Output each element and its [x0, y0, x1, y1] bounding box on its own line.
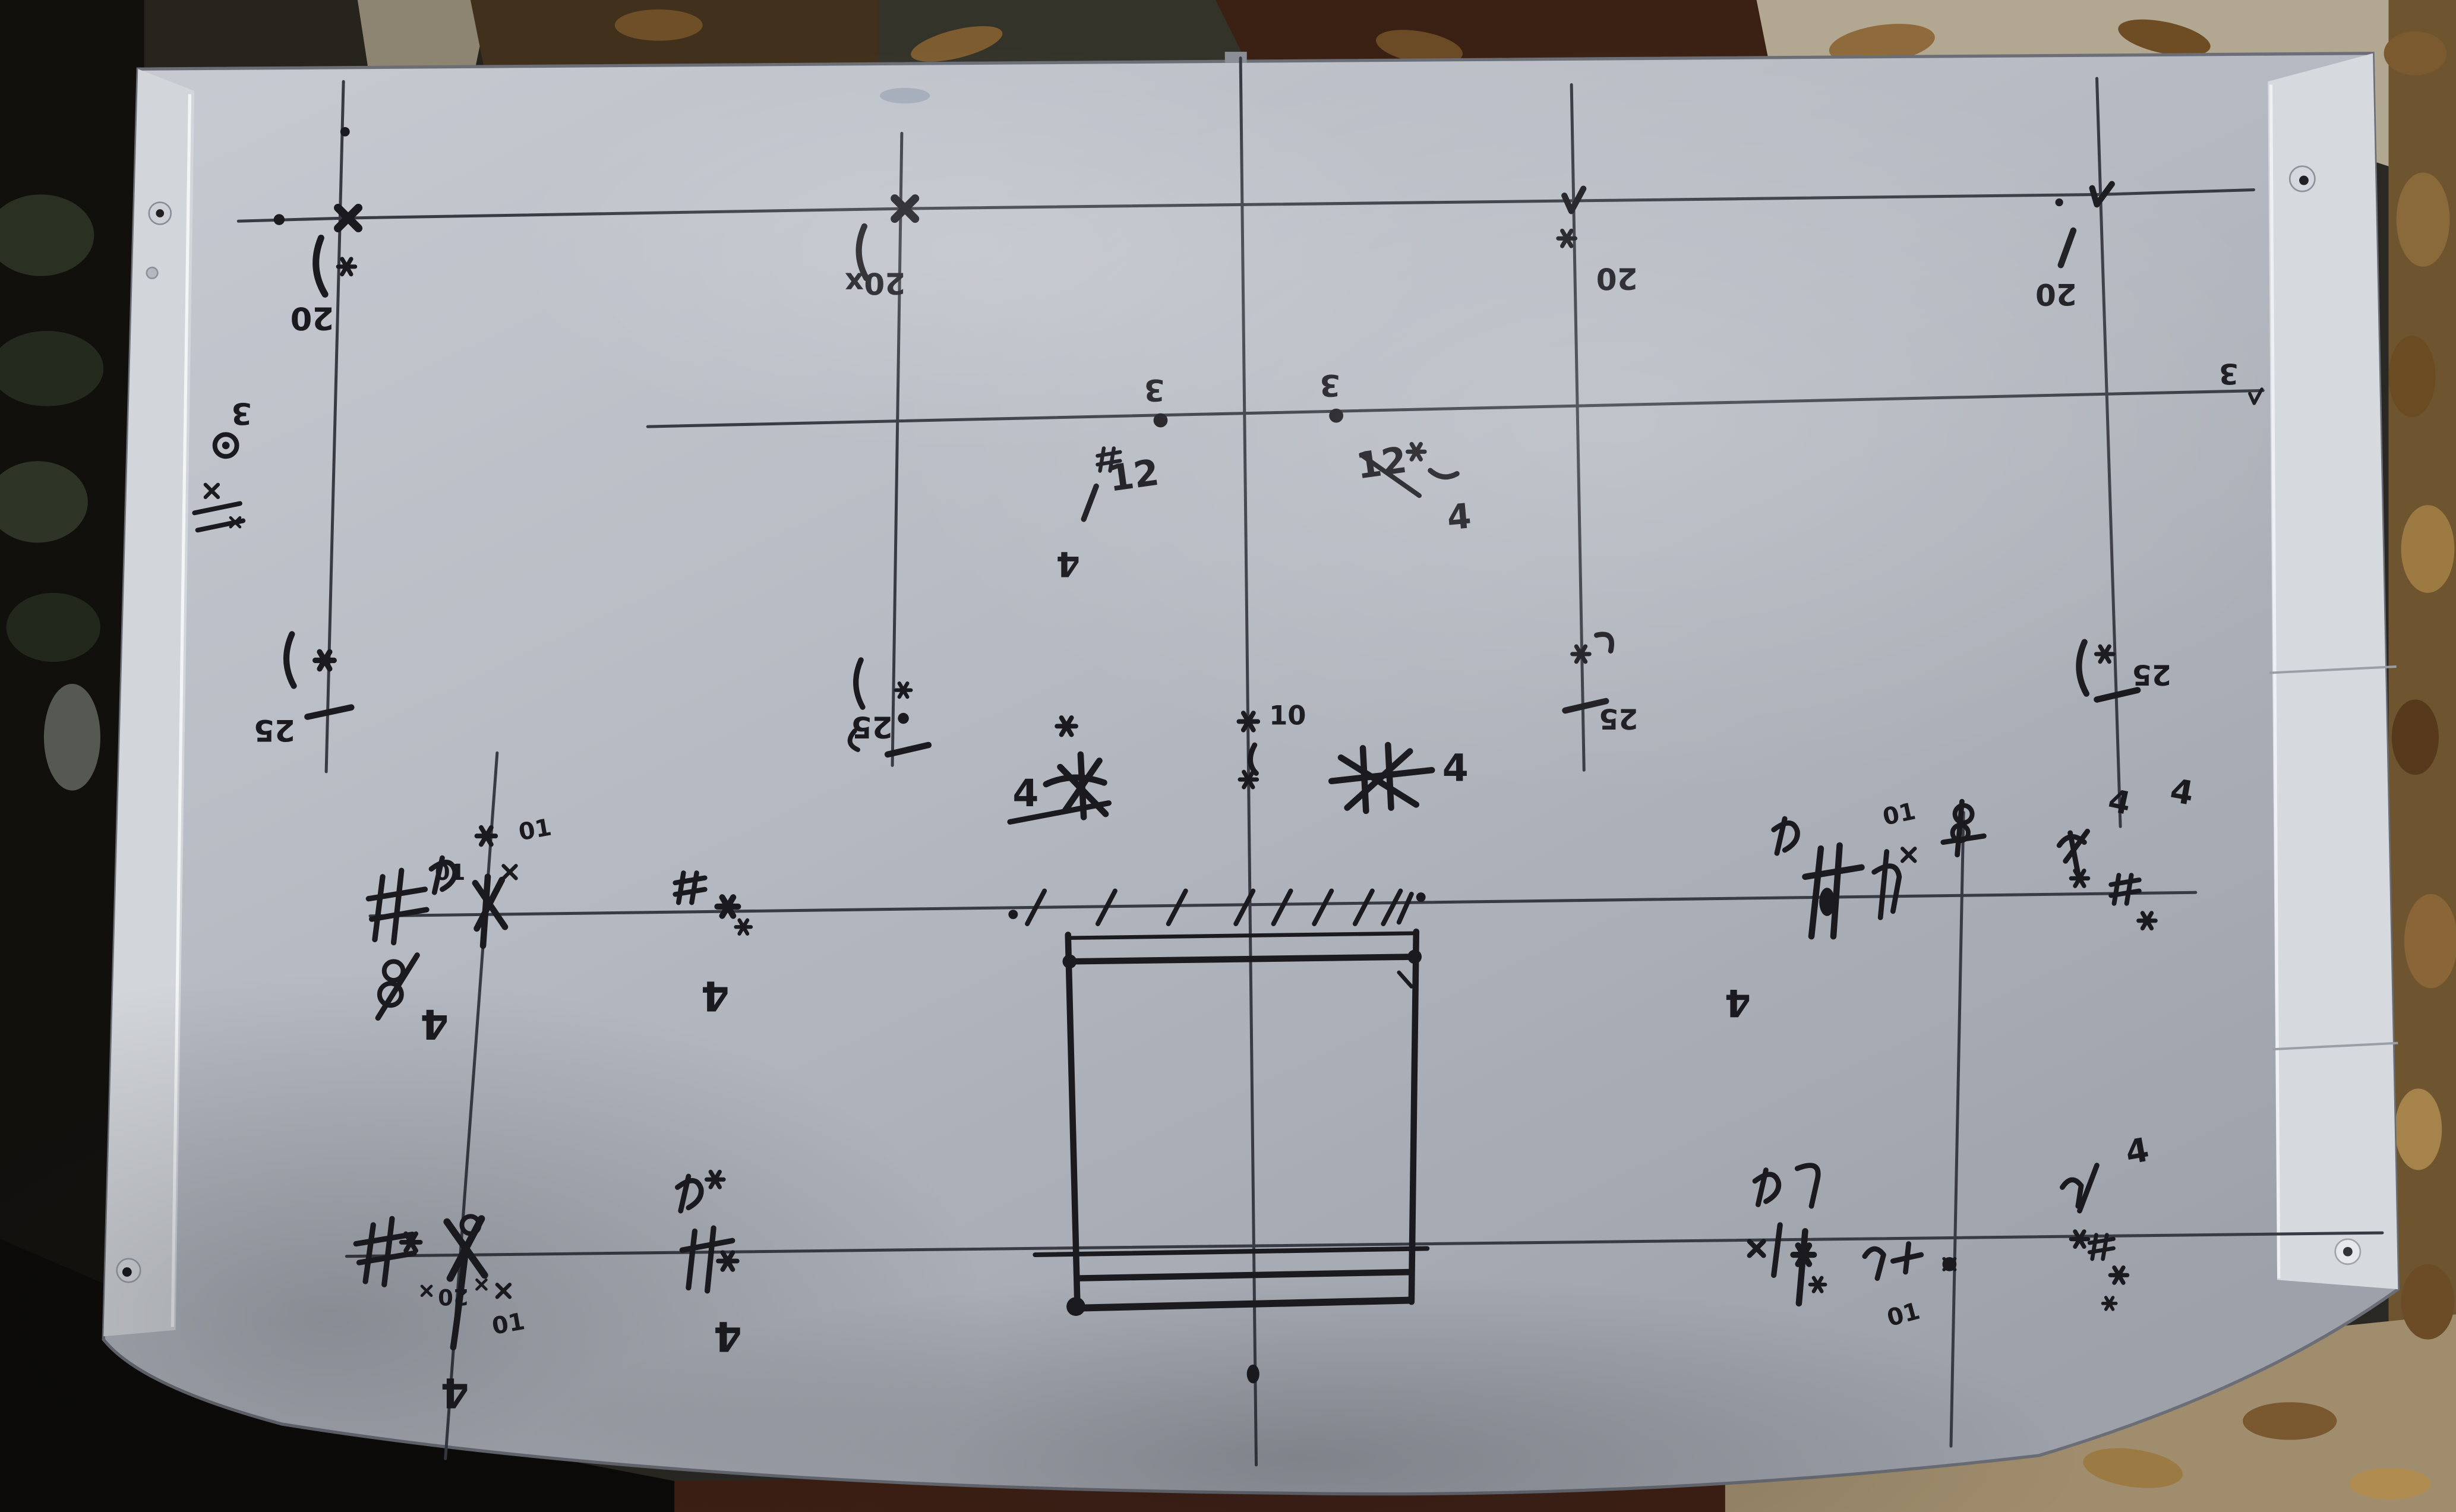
dot-mark [1416, 892, 1426, 902]
dot-mark [898, 713, 908, 724]
photo-of-marked-metal-panel: 20 20x 20 20 3 [0, 0, 2456, 1512]
corner-blob [1407, 950, 1422, 964]
gray-object [44, 684, 100, 791]
measurement-label: 25 [254, 713, 295, 748]
measurement-label: 4 [701, 972, 730, 1019]
screw-hole-icon [147, 267, 157, 278]
measurement-label: 3 [231, 396, 252, 431]
measurement-label: 01 [516, 814, 553, 847]
measurement-label: 20 [291, 299, 334, 336]
photo-canvas: 20 20x 20 20 3 [0, 0, 2456, 1512]
dot-mark [274, 214, 285, 225]
dot-mark [340, 127, 350, 137]
dot-mark [1008, 910, 1018, 919]
glare-highlight [502, 47, 1443, 454]
ink-blob [1819, 888, 1835, 916]
measurement-label: 25 [851, 709, 893, 744]
top-edge-notch [1225, 52, 1247, 62]
measurement-label: 4 [1725, 981, 1751, 1025]
measurement-label: 01 [435, 860, 465, 885]
corner-blob [1062, 954, 1077, 968]
metal-panel: 20 20x 20 20 3 [0, 47, 2398, 1512]
measurement-label: 4 [1012, 771, 1038, 815]
